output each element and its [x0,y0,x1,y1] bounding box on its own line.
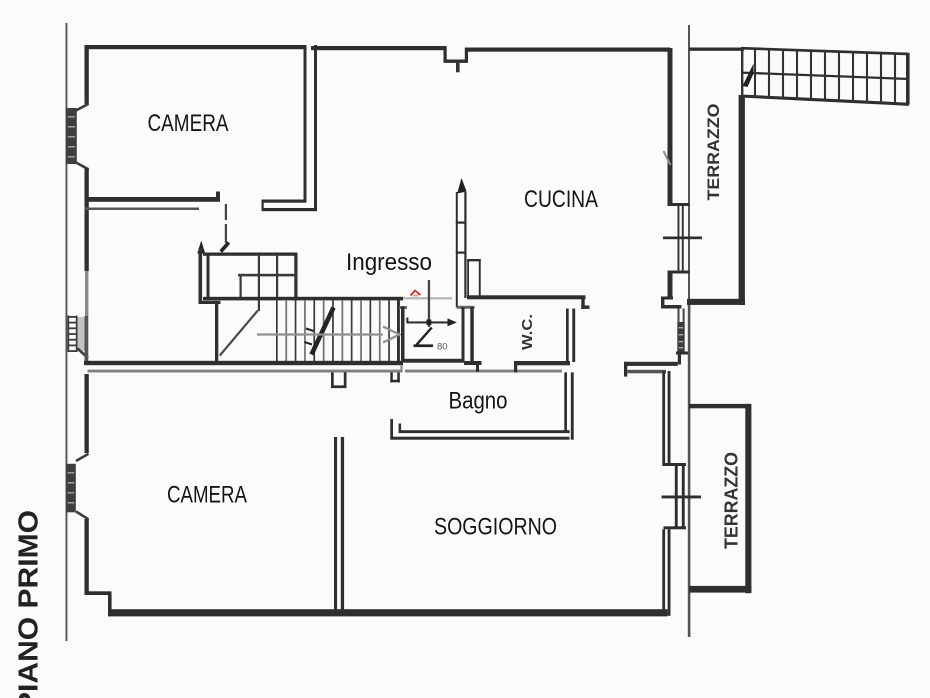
svg-text:W.C.: W.C. [519,314,536,350]
svg-text:CAMERA: CAMERA [167,482,247,509]
svg-text:Bagno: Bagno [449,388,508,415]
svg-text:PIANO PRIMO: PIANO PRIMO [13,510,44,698]
svg-text:SOGGIORNO: SOGGIORNO [434,514,557,541]
svg-text:TERRAZZO: TERRAZZO [704,104,723,201]
svg-text:Ingresso: Ingresso [346,249,432,276]
svg-text:CUCINA: CUCINA [524,186,598,213]
svg-text:80: 80 [437,342,448,353]
svg-text:CAMERA: CAMERA [148,110,229,137]
svg-text:TERRAZZO: TERRAZZO [722,452,742,549]
